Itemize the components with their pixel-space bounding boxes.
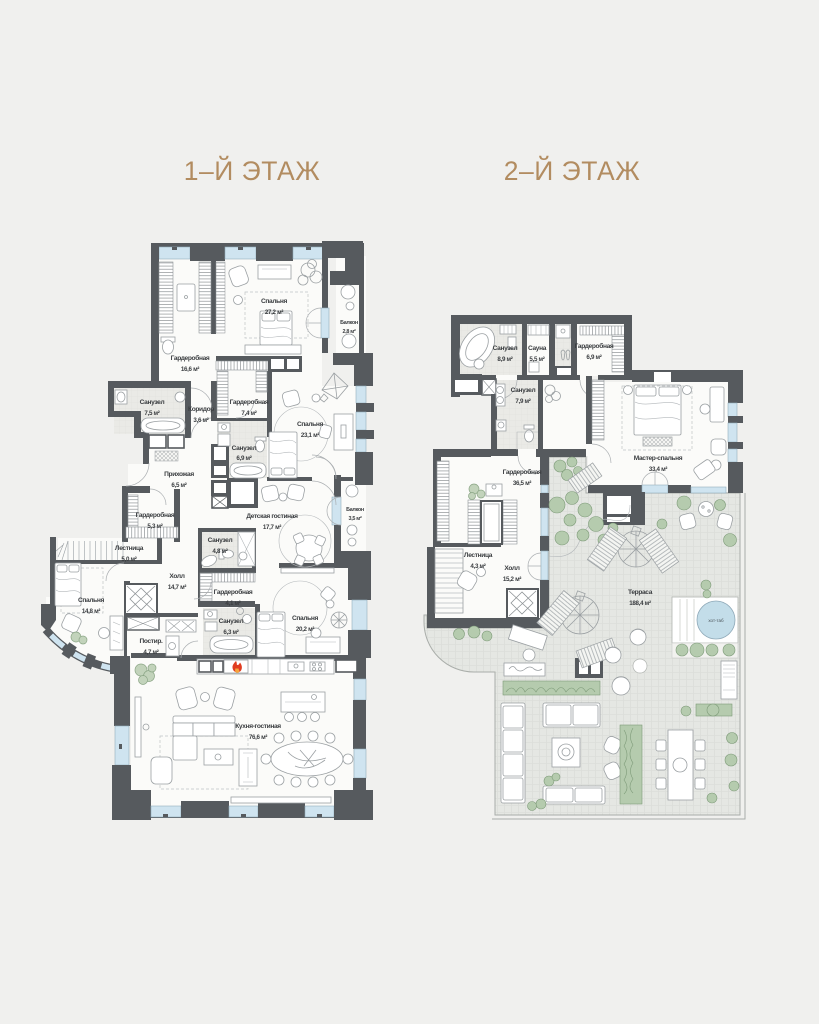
svg-text:6,9 м²: 6,9 м² — [236, 455, 251, 462]
svg-text:20,2 м²: 20,2 м² — [296, 626, 315, 633]
svg-text:76,6 м²: 76,6 м² — [249, 734, 268, 741]
svg-text:Спальня: Спальня — [78, 597, 105, 604]
svg-text:хот-таб: хот-таб — [708, 618, 724, 623]
svg-text:Терраса: Терраса — [628, 589, 653, 596]
svg-text:3,5 м²: 3,5 м² — [349, 516, 362, 522]
svg-text:33,4 м²: 33,4 м² — [649, 466, 668, 473]
svg-text:14,7 м²: 14,7 м² — [168, 584, 187, 591]
svg-text:Балкон: Балкон — [346, 507, 364, 513]
svg-text:Холл: Холл — [169, 573, 184, 580]
svg-text:15,2 м²: 15,2 м² — [503, 576, 522, 583]
svg-text:2,8 м²: 2,8 м² — [343, 329, 356, 335]
svg-text:Гардеробная: Гардеробная — [503, 468, 542, 476]
svg-text:36,5 м²: 36,5 м² — [513, 480, 532, 487]
svg-text:Санузел: Санузел — [511, 387, 536, 394]
svg-text:6,3 м²: 6,3 м² — [223, 629, 238, 636]
svg-text:Сауна: Сауна — [528, 345, 547, 352]
svg-text:2–Й ЭТАЖ: 2–Й ЭТАЖ — [504, 156, 640, 186]
svg-text:Гардеробная: Гардеробная — [136, 511, 175, 519]
svg-text:4,1 м²: 4,1 м² — [225, 600, 240, 607]
svg-text:3,6 м²: 3,6 м² — [193, 417, 208, 424]
svg-text:4,7 м²: 4,7 м² — [143, 649, 158, 656]
svg-text:14,8 м²: 14,8 м² — [82, 608, 101, 615]
svg-text:Детская гостиная: Детская гостиная — [246, 513, 298, 520]
svg-text:1–Й ЭТАЖ: 1–Й ЭТАЖ — [184, 156, 320, 186]
svg-text:Спальня: Спальня — [292, 615, 319, 622]
svg-text:Балкон: Балкон — [340, 320, 358, 326]
svg-text:8,9 м²: 8,9 м² — [497, 356, 512, 363]
svg-text:Постир.: Постир. — [139, 638, 163, 645]
svg-text:17,7 м²: 17,7 м² — [263, 524, 282, 531]
svg-text:23,1 м²: 23,1 м² — [301, 432, 320, 439]
svg-text:Коридор: Коридор — [188, 406, 214, 413]
svg-text:7,5 м²: 7,5 м² — [144, 410, 159, 417]
svg-text:5,3 м²: 5,3 м² — [147, 523, 162, 530]
svg-text:Санузел: Санузел — [493, 345, 518, 352]
svg-text:188,4 м²: 188,4 м² — [629, 600, 651, 607]
svg-text:Гардеробная: Гардеробная — [230, 398, 269, 406]
svg-text:Спальня: Спальня — [297, 421, 324, 428]
svg-text:Санузел: Санузел — [232, 445, 257, 452]
svg-text:Лестница: Лестница — [464, 552, 493, 559]
svg-text:Мастер-спальня: Мастер-спальня — [634, 455, 683, 462]
svg-text:5,5 м²: 5,5 м² — [529, 356, 544, 363]
svg-text:Санузел: Санузел — [208, 537, 233, 544]
svg-text:Гардеробная: Гардеробная — [575, 342, 614, 350]
svg-text:4,3 м²: 4,3 м² — [470, 563, 485, 570]
svg-text:Кухня-гостиная: Кухня-гостиная — [235, 723, 281, 730]
svg-text:Лестница: Лестница — [115, 545, 144, 552]
svg-text:7,9 м²: 7,9 м² — [515, 398, 530, 405]
svg-text:Холл: Холл — [504, 565, 519, 572]
svg-text:Санузел: Санузел — [140, 399, 165, 406]
svg-text:27,2 м²: 27,2 м² — [265, 309, 284, 316]
svg-text:Гардеробная: Гардеробная — [171, 354, 210, 362]
svg-text:Гардеробная: Гардеробная — [214, 588, 253, 596]
svg-text:4,8 м²: 4,8 м² — [212, 548, 227, 555]
svg-text:16,6 м²: 16,6 м² — [181, 366, 200, 373]
svg-text:6,9 м²: 6,9 м² — [586, 354, 601, 361]
svg-text:5,0 м²: 5,0 м² — [121, 556, 136, 563]
svg-text:7,4 м²: 7,4 м² — [241, 410, 256, 417]
svg-text:Спальня: Спальня — [261, 298, 288, 305]
svg-text:6,5 м²: 6,5 м² — [171, 482, 186, 489]
svg-text:Прихожая: Прихожая — [164, 471, 194, 478]
svg-text:Санузел: Санузел — [219, 618, 244, 625]
